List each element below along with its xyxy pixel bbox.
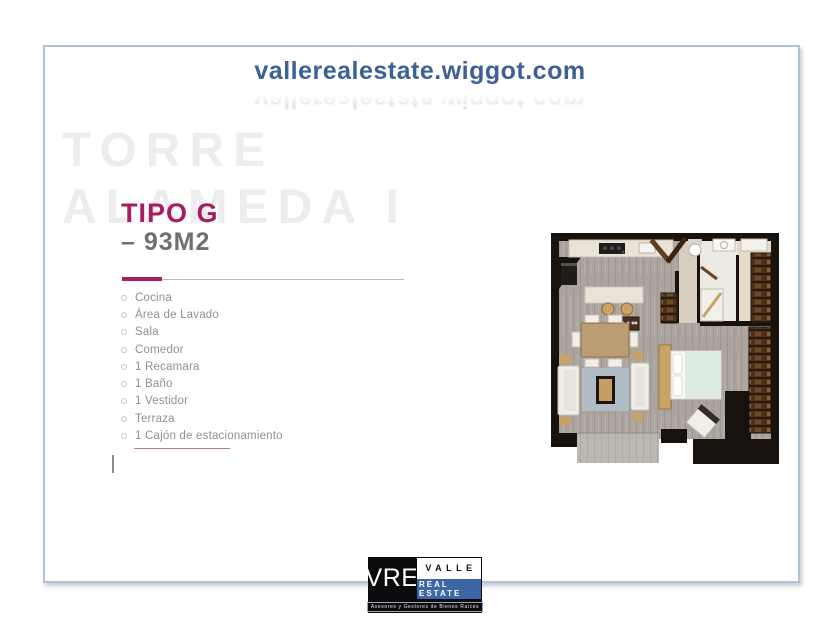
bullet-icon [121, 347, 127, 353]
bullet-icon [121, 295, 127, 301]
logo-name-bottom: REAL ESTATE [417, 579, 481, 600]
unit-title: TIPO G [121, 198, 219, 229]
text-cursor-mark [112, 455, 114, 473]
bullet-icon [121, 433, 127, 439]
feature-item: 1 Baño [121, 375, 283, 392]
title-divider [122, 277, 404, 281]
bullet-icon [121, 329, 127, 335]
feature-item: Sala [121, 324, 283, 341]
feature-label: Comedor [135, 344, 184, 356]
website-url-reflection: vallerealestate.wiggot.com [0, 84, 840, 113]
feature-label: 1 Recamara [135, 361, 200, 373]
logo-tagline: Asesores y Gestores de Bienes Raices [367, 602, 483, 612]
feature-item: 1 Cajón de estacionamiento [121, 427, 283, 444]
list-underline [134, 448, 230, 449]
feature-item: Área de Lavado [121, 306, 283, 323]
bullet-icon [121, 398, 127, 404]
tower-watermark: TORRE ALAMEDA I [62, 122, 408, 236]
floorplan-image [545, 227, 785, 464]
company-logo: VRE VALLE REAL ESTATE Asesores y Gestore… [368, 557, 482, 613]
feature-label: Terraza [135, 413, 175, 425]
watermark-line2: ALAMEDA I [62, 179, 408, 236]
bullet-icon [121, 312, 127, 318]
watermark-line1: TORRE [62, 122, 408, 179]
logo-name-top: VALLE [417, 558, 481, 579]
feature-item: Comedor [121, 341, 283, 358]
divider-line [162, 279, 404, 280]
feature-item: Terraza [121, 410, 283, 427]
bullet-icon [121, 364, 127, 370]
unit-area: – 93M2 [121, 228, 210, 257]
feature-label: Sala [135, 326, 159, 338]
feature-label: 1 Vestidor [135, 395, 188, 407]
divider-accent [122, 277, 162, 281]
feature-list: Cocina Área de Lavado Sala Comedor 1 Rec… [121, 289, 283, 445]
logo-tagline-bar: Asesores y Gestores de Bienes Raices [368, 600, 482, 613]
logo-monogram: VRE [368, 557, 416, 600]
feature-label: Cocina [135, 292, 172, 304]
bullet-icon [121, 381, 127, 387]
feature-label: 1 Baño [135, 378, 173, 390]
feature-label: Área de Lavado [135, 309, 219, 321]
bullet-icon [121, 416, 127, 422]
feature-item: 1 Recamara [121, 358, 283, 375]
feature-label: 1 Cajón de estacionamiento [135, 430, 283, 442]
feature-item: 1 Vestidor [121, 393, 283, 410]
feature-item: Cocina [121, 289, 283, 306]
website-url[interactable]: vallerealestate.wiggot.com [0, 57, 840, 86]
